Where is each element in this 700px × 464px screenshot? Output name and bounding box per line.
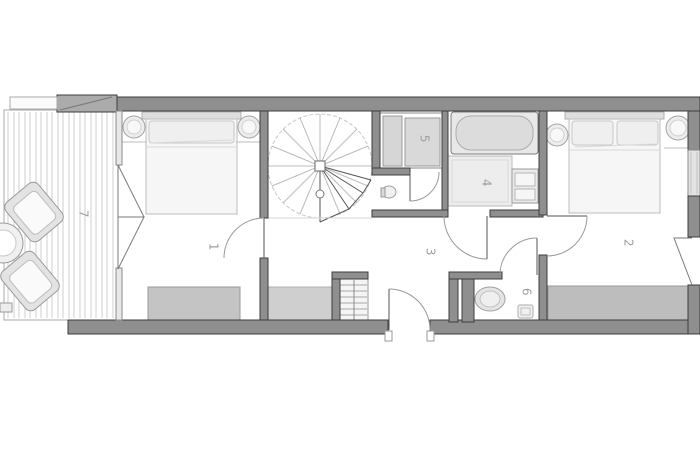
floor-plan-drawing: 7 1 5 4: [0, 0, 700, 464]
wc-room: 6: [475, 287, 534, 318]
outer-wall-right: [688, 111, 700, 150]
room-label-closet: 5: [418, 135, 432, 143]
bedside-stool-top: [550, 128, 564, 142]
room-label-bathroom: 4: [480, 179, 494, 187]
side-table: [0, 303, 12, 312]
outer-wall-top: [115, 97, 700, 111]
door-frame-tick: [385, 331, 392, 341]
room-label-bedroom-right: 2: [622, 239, 636, 247]
bed-pillow: [617, 121, 658, 145]
bathroom: 4: [448, 112, 538, 206]
door-bathroom: [444, 216, 487, 259]
wall-alcove-bottom: [372, 210, 448, 217]
door-swing-arc: [547, 216, 587, 256]
bed-pillows: [149, 121, 234, 143]
wall-bedroom-left: [260, 258, 268, 320]
hallway-cabinet: [268, 287, 332, 320]
bed-headboard: [565, 112, 664, 119]
spiral-stair-center-post: [315, 161, 325, 171]
door-swing-arc: [224, 218, 264, 258]
door-leaf: [118, 217, 144, 269]
wall-wc-duct: [449, 279, 458, 322]
door-leaf: [118, 165, 144, 217]
door-bedroom-right: [547, 216, 587, 256]
door-swing-arc: [444, 216, 487, 259]
vanity-drawer: [515, 189, 535, 200]
room-label-hallway: 3: [424, 248, 438, 256]
door-frame-tick: [427, 331, 434, 341]
door-swing-arc: [410, 172, 439, 201]
window: [688, 150, 700, 196]
door-bedroom-left: [224, 218, 264, 258]
wall-wc-top: [449, 272, 502, 279]
door-closet: [410, 172, 439, 201]
room-label-bedroom-left: 1: [207, 243, 221, 251]
bathtub-basin: [456, 116, 533, 150]
wall-closet-bathroom: [442, 111, 448, 217]
wall-bathroom-bedroom: [539, 111, 547, 215]
wardrobe: [148, 287, 240, 320]
bedside-stool-top: [127, 120, 141, 134]
bed-headboard: [142, 112, 241, 119]
stair-top-wall: [332, 272, 368, 279]
outer-wall-bottom-left: [68, 320, 388, 334]
window-wall-terrace: [116, 111, 122, 165]
spiral-staircase: [268, 114, 372, 222]
door-wc: [500, 238, 537, 275]
room-label-terrace: 7: [77, 210, 91, 218]
bedside-stool-top: [670, 120, 686, 136]
floor-plan-canvas: 7 1 5 4: [0, 0, 700, 464]
spiral-stair-handrail-node: [316, 190, 324, 198]
entry-door: [385, 289, 434, 341]
door-swing-arc: [500, 238, 537, 275]
closet-panel: [383, 116, 402, 166]
outer-wall-right: [688, 196, 700, 237]
hallway: 3: [268, 248, 438, 320]
straight-stairs: [332, 272, 368, 320]
wall-bedroom-left: [260, 111, 268, 218]
bedside-stool-top: [242, 120, 256, 134]
wall-stair-hall: [372, 111, 380, 172]
wall-bathroom-bottom: [490, 210, 543, 217]
spiral-stair-treads-dark: [320, 166, 371, 222]
washbasin-tap: [381, 188, 385, 197]
outer-wall-right: [688, 285, 700, 334]
terrace-edge-beam: [10, 97, 57, 109]
balcony-door-bedroom-right: [674, 238, 692, 285]
window-wall-terrace: [116, 268, 122, 320]
wardrobe: [548, 286, 688, 320]
toilet-bowl-inner: [480, 291, 500, 307]
vanity-sink: [515, 173, 535, 186]
terrace: 7: [0, 102, 119, 320]
door-swing-arc: [389, 289, 430, 330]
wall-closet: [372, 168, 410, 175]
door-leaf: [674, 238, 692, 285]
room-label-wc: 6: [520, 288, 534, 296]
wall-wc-bedroom: [539, 255, 547, 320]
bed-pillow: [572, 121, 613, 145]
wall-wc-duct: [462, 279, 474, 322]
french-door-terrace: [118, 165, 144, 269]
floor-drain: [518, 305, 533, 318]
closet-room: 5: [380, 113, 442, 198]
